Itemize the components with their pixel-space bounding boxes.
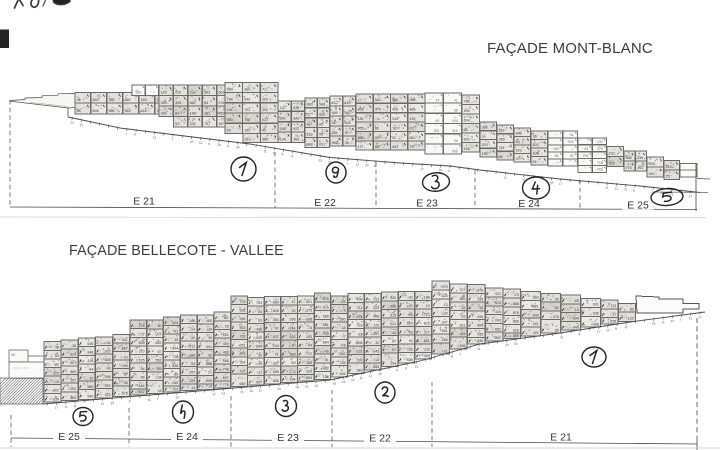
svg-text:200: 200 xyxy=(434,129,440,133)
svg-text:331: 331 xyxy=(190,122,196,126)
svg-text:186: 186 xyxy=(189,353,195,357)
svg-text:11: 11 xyxy=(504,176,508,180)
svg-text:E 23: E 23 xyxy=(416,198,438,210)
svg-text:310: 310 xyxy=(452,129,458,133)
svg-text:154: 154 xyxy=(290,378,296,382)
svg-text:251: 251 xyxy=(240,343,246,347)
svg-text:733: 733 xyxy=(357,324,363,328)
svg-text:865: 865 xyxy=(513,334,519,338)
svg-text:302: 302 xyxy=(240,309,246,313)
svg-text:65: 65 xyxy=(219,122,223,126)
svg-text:41: 41 xyxy=(454,98,458,102)
svg-text:392: 392 xyxy=(262,108,268,112)
svg-text:35: 35 xyxy=(174,338,178,342)
svg-text:67: 67 xyxy=(410,126,414,130)
svg-text:182: 182 xyxy=(358,117,364,121)
svg-text:61: 61 xyxy=(409,339,413,343)
svg-text:946: 946 xyxy=(573,326,579,330)
svg-text:169: 169 xyxy=(141,98,147,102)
svg-text:500: 500 xyxy=(256,336,262,340)
svg-text:828: 828 xyxy=(345,121,351,125)
svg-text:FAÇADE BELLECOTE - VALLEE: FAÇADE BELLECOTE - VALLEE xyxy=(69,243,284,259)
svg-text:621: 621 xyxy=(190,101,196,105)
svg-text:E 22: E 22 xyxy=(369,433,391,445)
svg-text:31: 31 xyxy=(409,296,413,300)
svg-text:52: 52 xyxy=(392,136,396,140)
svg-text:604: 604 xyxy=(573,317,579,321)
svg-text:17: 17 xyxy=(420,167,424,171)
svg-text:874: 874 xyxy=(495,301,501,305)
svg-text:949: 949 xyxy=(477,315,483,319)
svg-text:321: 321 xyxy=(495,292,501,296)
svg-text:281: 281 xyxy=(459,323,465,327)
svg-text:13: 13 xyxy=(175,395,179,399)
svg-text:718: 718 xyxy=(597,161,603,165)
svg-text:25: 25 xyxy=(666,174,670,178)
svg-text:377: 377 xyxy=(424,330,430,334)
svg-text:E 21: E 21 xyxy=(550,432,572,444)
svg-text:794: 794 xyxy=(227,98,233,102)
svg-text:16: 16 xyxy=(342,326,346,330)
svg-text:868: 868 xyxy=(513,320,519,324)
svg-text:E 24: E 24 xyxy=(518,198,540,210)
svg-text:443: 443 xyxy=(637,166,643,170)
svg-text:11: 11 xyxy=(153,135,157,139)
svg-text:57: 57 xyxy=(392,348,396,352)
svg-text:21: 21 xyxy=(477,347,481,351)
svg-text:546: 546 xyxy=(87,342,93,346)
svg-text:636: 636 xyxy=(357,341,363,345)
svg-text:45: 45 xyxy=(124,381,128,385)
svg-text:16: 16 xyxy=(158,389,162,393)
svg-text:39: 39 xyxy=(292,309,296,313)
svg-text:51: 51 xyxy=(409,304,413,308)
svg-text:663: 663 xyxy=(533,296,539,300)
svg-text:23: 23 xyxy=(670,319,674,323)
svg-text:86: 86 xyxy=(454,109,458,113)
svg-text:247: 247 xyxy=(442,320,448,324)
svg-text:421: 421 xyxy=(533,331,539,335)
svg-text:14: 14 xyxy=(575,308,579,312)
svg-text:491: 491 xyxy=(206,345,212,349)
svg-text:13: 13 xyxy=(444,303,448,307)
svg-text:979: 979 xyxy=(442,285,448,289)
svg-text:33: 33 xyxy=(345,141,349,145)
svg-text:496: 496 xyxy=(459,344,465,348)
svg-text:596: 596 xyxy=(105,375,111,379)
svg-text:266: 266 xyxy=(442,338,448,342)
svg-text:540: 540 xyxy=(87,395,93,399)
svg-text:23: 23 xyxy=(318,158,322,162)
svg-text:17: 17 xyxy=(258,371,262,375)
svg-text:601: 601 xyxy=(593,303,599,307)
svg-text:661: 661 xyxy=(442,329,448,333)
svg-text:313: 313 xyxy=(499,137,505,141)
svg-text:75: 75 xyxy=(410,145,414,149)
svg-text:606: 606 xyxy=(452,149,458,153)
svg-text:458: 458 xyxy=(373,315,379,319)
svg-text:FAÇADE MONT-BLANC: FAÇADE MONT-BLANC xyxy=(487,40,653,57)
svg-text:21: 21 xyxy=(444,349,448,353)
svg-text:47: 47 xyxy=(292,300,296,304)
svg-text:575: 575 xyxy=(139,358,145,362)
svg-text:869: 869 xyxy=(70,370,76,374)
svg-text:604: 604 xyxy=(464,118,470,122)
svg-text:802: 802 xyxy=(53,389,59,393)
svg-text:939: 939 xyxy=(568,140,574,144)
svg-text:92: 92 xyxy=(89,376,93,380)
svg-text:480: 480 xyxy=(206,319,212,323)
svg-text:550: 550 xyxy=(340,317,346,321)
svg-text:37: 37 xyxy=(612,313,616,317)
svg-text:817: 817 xyxy=(122,347,128,351)
svg-text:86: 86 xyxy=(499,155,503,159)
svg-text:70: 70 xyxy=(515,293,519,297)
svg-text:375: 375 xyxy=(306,309,312,313)
svg-text:129: 129 xyxy=(161,90,167,94)
svg-text:120: 120 xyxy=(628,317,634,321)
svg-text:14: 14 xyxy=(191,386,195,390)
svg-text:71: 71 xyxy=(275,353,279,357)
svg-text:146: 146 xyxy=(190,111,196,115)
svg-text:955: 955 xyxy=(206,379,212,383)
svg-text:E 25: E 25 xyxy=(627,200,649,212)
svg-text:23: 23 xyxy=(341,380,345,384)
svg-text:923: 923 xyxy=(516,148,522,152)
svg-text:550: 550 xyxy=(136,91,142,95)
svg-text:54: 54 xyxy=(555,154,559,158)
svg-text:576: 576 xyxy=(513,311,519,315)
svg-text:876: 876 xyxy=(323,297,329,301)
svg-text:41: 41 xyxy=(392,331,396,335)
svg-text:11: 11 xyxy=(73,404,77,408)
svg-text:435: 435 xyxy=(477,333,483,337)
svg-text:E 23: E 23 xyxy=(277,432,299,444)
svg-text:82: 82 xyxy=(570,154,574,158)
svg-text:775: 775 xyxy=(223,383,229,387)
svg-text:661: 661 xyxy=(424,339,430,343)
svg-text:81: 81 xyxy=(325,358,329,362)
svg-text:84: 84 xyxy=(258,310,262,314)
svg-text:120: 120 xyxy=(262,98,268,102)
svg-text:13: 13 xyxy=(277,387,281,391)
svg-text:450: 450 xyxy=(223,342,229,346)
svg-text:74: 74 xyxy=(436,98,440,102)
svg-text:229: 229 xyxy=(189,379,195,383)
svg-text:94: 94 xyxy=(204,101,208,105)
svg-text:83: 83 xyxy=(585,147,589,151)
svg-text:E 25: E 25 xyxy=(58,431,80,443)
svg-text:829: 829 xyxy=(306,376,312,380)
svg-text:23: 23 xyxy=(305,384,309,388)
svg-text:540: 540 xyxy=(533,313,539,317)
svg-text:84: 84 xyxy=(107,341,111,345)
svg-text:154: 154 xyxy=(240,361,246,365)
svg-text:E 24: E 24 xyxy=(176,431,198,443)
svg-text:32: 32 xyxy=(375,341,379,345)
svg-text:638: 638 xyxy=(293,106,299,110)
svg-text:23: 23 xyxy=(606,328,610,332)
svg-text:192: 192 xyxy=(609,151,615,155)
svg-text:17: 17 xyxy=(689,194,693,198)
svg-text:85: 85 xyxy=(555,328,559,332)
svg-text:120: 120 xyxy=(373,323,379,327)
svg-text:752: 752 xyxy=(244,108,250,112)
svg-text:63: 63 xyxy=(55,354,59,358)
svg-text:17: 17 xyxy=(597,330,601,334)
svg-text:946: 946 xyxy=(240,317,246,321)
svg-text:565: 565 xyxy=(262,137,268,141)
svg-text:283: 283 xyxy=(306,335,312,339)
svg-text:879: 879 xyxy=(240,352,246,356)
svg-text:21: 21 xyxy=(614,187,618,191)
svg-text:NE: NE xyxy=(11,353,16,357)
svg-text:94: 94 xyxy=(454,139,458,143)
svg-text:966: 966 xyxy=(332,141,338,145)
svg-text:194: 194 xyxy=(390,362,396,366)
svg-text:580: 580 xyxy=(227,88,233,92)
svg-text:364: 364 xyxy=(273,318,279,322)
svg-text:29: 29 xyxy=(436,119,440,123)
svg-text:21: 21 xyxy=(208,371,212,375)
svg-text:E 22: E 22 xyxy=(314,197,336,209)
svg-text:23: 23 xyxy=(70,120,74,124)
svg-text:34: 34 xyxy=(479,306,483,310)
svg-text:416: 416 xyxy=(87,359,93,363)
svg-text:694: 694 xyxy=(340,372,346,376)
svg-text:240: 240 xyxy=(392,117,398,121)
svg-text:240: 240 xyxy=(244,98,250,102)
svg-text:137: 137 xyxy=(597,140,603,144)
svg-text:963: 963 xyxy=(125,109,131,113)
svg-text:889: 889 xyxy=(332,111,338,115)
svg-text:712: 712 xyxy=(357,306,363,310)
svg-text:11: 11 xyxy=(258,388,262,392)
svg-text:35: 35 xyxy=(555,297,559,301)
svg-text:155: 155 xyxy=(464,147,470,151)
svg-text:866: 866 xyxy=(358,136,364,140)
svg-text:17: 17 xyxy=(55,405,59,409)
svg-text:863: 863 xyxy=(204,90,210,94)
svg-text:281: 281 xyxy=(323,323,329,327)
svg-text:803: 803 xyxy=(533,143,539,147)
svg-text:E 21: E 21 xyxy=(133,196,155,208)
svg-text:782: 782 xyxy=(340,361,346,365)
svg-text:652: 652 xyxy=(495,327,501,331)
svg-text:634: 634 xyxy=(452,119,458,123)
svg-text:189: 189 xyxy=(553,147,559,151)
svg-text:303: 303 xyxy=(482,143,488,147)
svg-text:192: 192 xyxy=(410,117,416,121)
svg-text:657: 657 xyxy=(407,322,413,326)
svg-text:73: 73 xyxy=(308,326,312,330)
